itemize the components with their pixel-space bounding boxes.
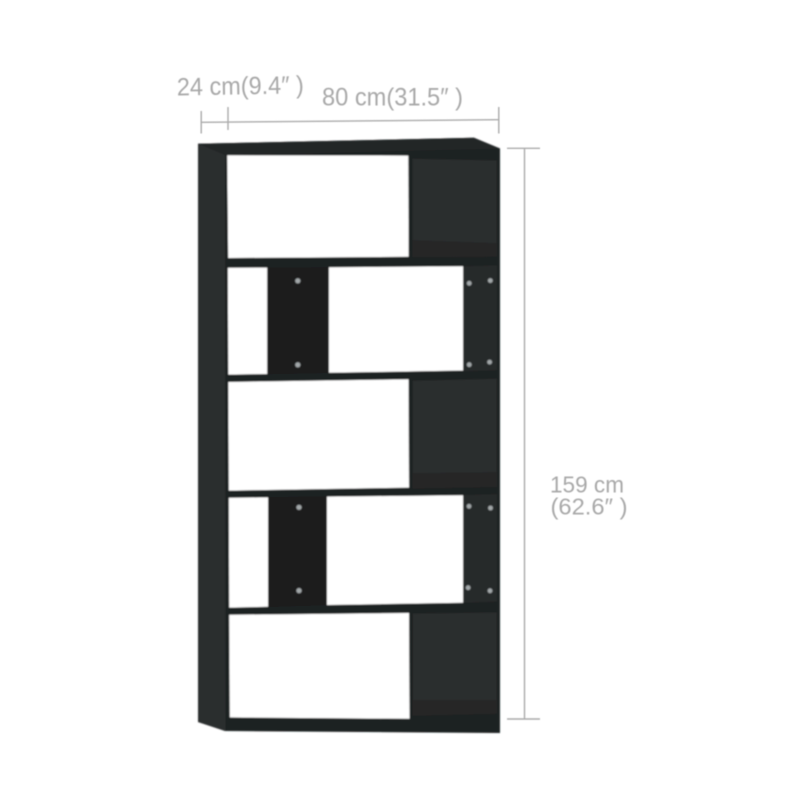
svg-text:(62.6″ ): (62.6″ ) — [551, 494, 628, 520]
svg-text:80 cm(31.5″ ): 80 cm(31.5″ ) — [322, 84, 463, 112]
svg-text:24 cm(9.4″ ): 24 cm(9.4″ ) — [177, 71, 304, 101]
